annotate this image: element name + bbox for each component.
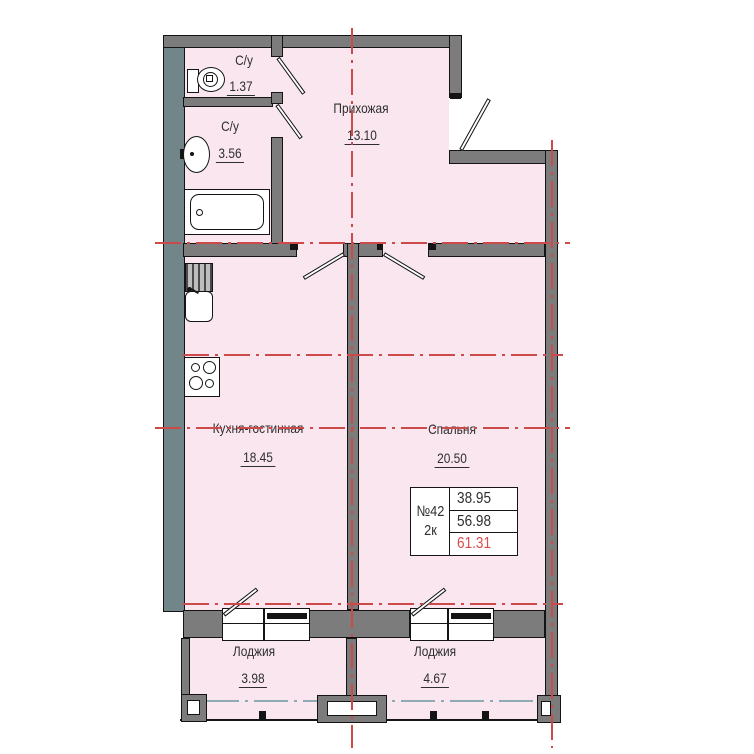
floor-area-value: 56.98	[457, 513, 491, 531]
wall-exterior-left	[163, 35, 185, 612]
glazing-post	[482, 711, 489, 720]
axis-line	[183, 603, 563, 605]
room-label-hallway: Прихожая	[329, 100, 394, 116]
entry-door-leaf-icon	[459, 98, 491, 151]
room-label-wc-large: С/у	[220, 118, 241, 134]
wall-hallway-bottom	[183, 243, 297, 257]
wall-bath-right	[271, 137, 283, 244]
wall-bath-right	[271, 35, 283, 57]
axis-line	[351, 28, 353, 748]
glazing-post	[430, 711, 437, 720]
room-area-bedroom: 20.50	[431, 450, 472, 468]
wall-hallway-bottom	[428, 243, 545, 257]
room-fill-hallway	[449, 164, 545, 244]
room-label-bedroom: Спальня	[424, 421, 480, 437]
floor-plan: С/у 1.37 С/у 3.56 Прихожая 13.10 Кухня-г…	[0, 0, 754, 754]
total-area-value: 61.31	[457, 535, 491, 553]
apartment-number: №42	[416, 503, 444, 522]
wall-top	[163, 35, 462, 48]
door-jamb	[377, 244, 383, 250]
door-jamb	[290, 244, 298, 250]
room-area-wc-small: 1.37	[224, 78, 257, 96]
room-area-loggia-right: 4.67	[418, 670, 451, 688]
room-label-wc-small: С/у	[234, 52, 255, 68]
window-sash-icon	[451, 613, 491, 619]
wall-bath-divider	[183, 97, 273, 107]
room-label-loggia-right: Лоджия	[410, 643, 460, 659]
room-area-kitchen-living: 18.45	[237, 449, 278, 467]
apartment-rooms-count: 2к	[424, 522, 437, 541]
pillar-core	[541, 701, 551, 716]
living-area-value: 38.95	[457, 490, 491, 508]
room-area-wc-large: 3.56	[213, 145, 246, 163]
glazing-post	[259, 711, 266, 720]
axis-line	[551, 140, 553, 748]
axis-line	[155, 242, 570, 244]
door-jamb	[428, 244, 436, 250]
room-area-loggia-left: 3.98	[236, 670, 269, 688]
window-sash-icon	[267, 613, 307, 619]
wall-bottom	[309, 610, 410, 638]
axis-line	[155, 427, 570, 429]
pillar-core	[187, 700, 200, 715]
apartment-info-table: №42 2к 38.95 56.98 61.31	[410, 487, 518, 556]
wall-bottom	[492, 610, 545, 638]
room-fill-hallway	[283, 48, 449, 244]
wall-bath-right	[271, 92, 283, 104]
wall-loggia-left	[181, 638, 190, 696]
room-label-loggia-left: Лоджия	[229, 643, 279, 659]
wall-entry-step	[449, 35, 462, 98]
axis-line	[183, 354, 563, 356]
door-jamb	[450, 93, 461, 99]
wall-bottom	[183, 610, 223, 638]
room-area-hallway: 13.10	[341, 127, 382, 145]
wall-entry-top	[449, 150, 558, 164]
